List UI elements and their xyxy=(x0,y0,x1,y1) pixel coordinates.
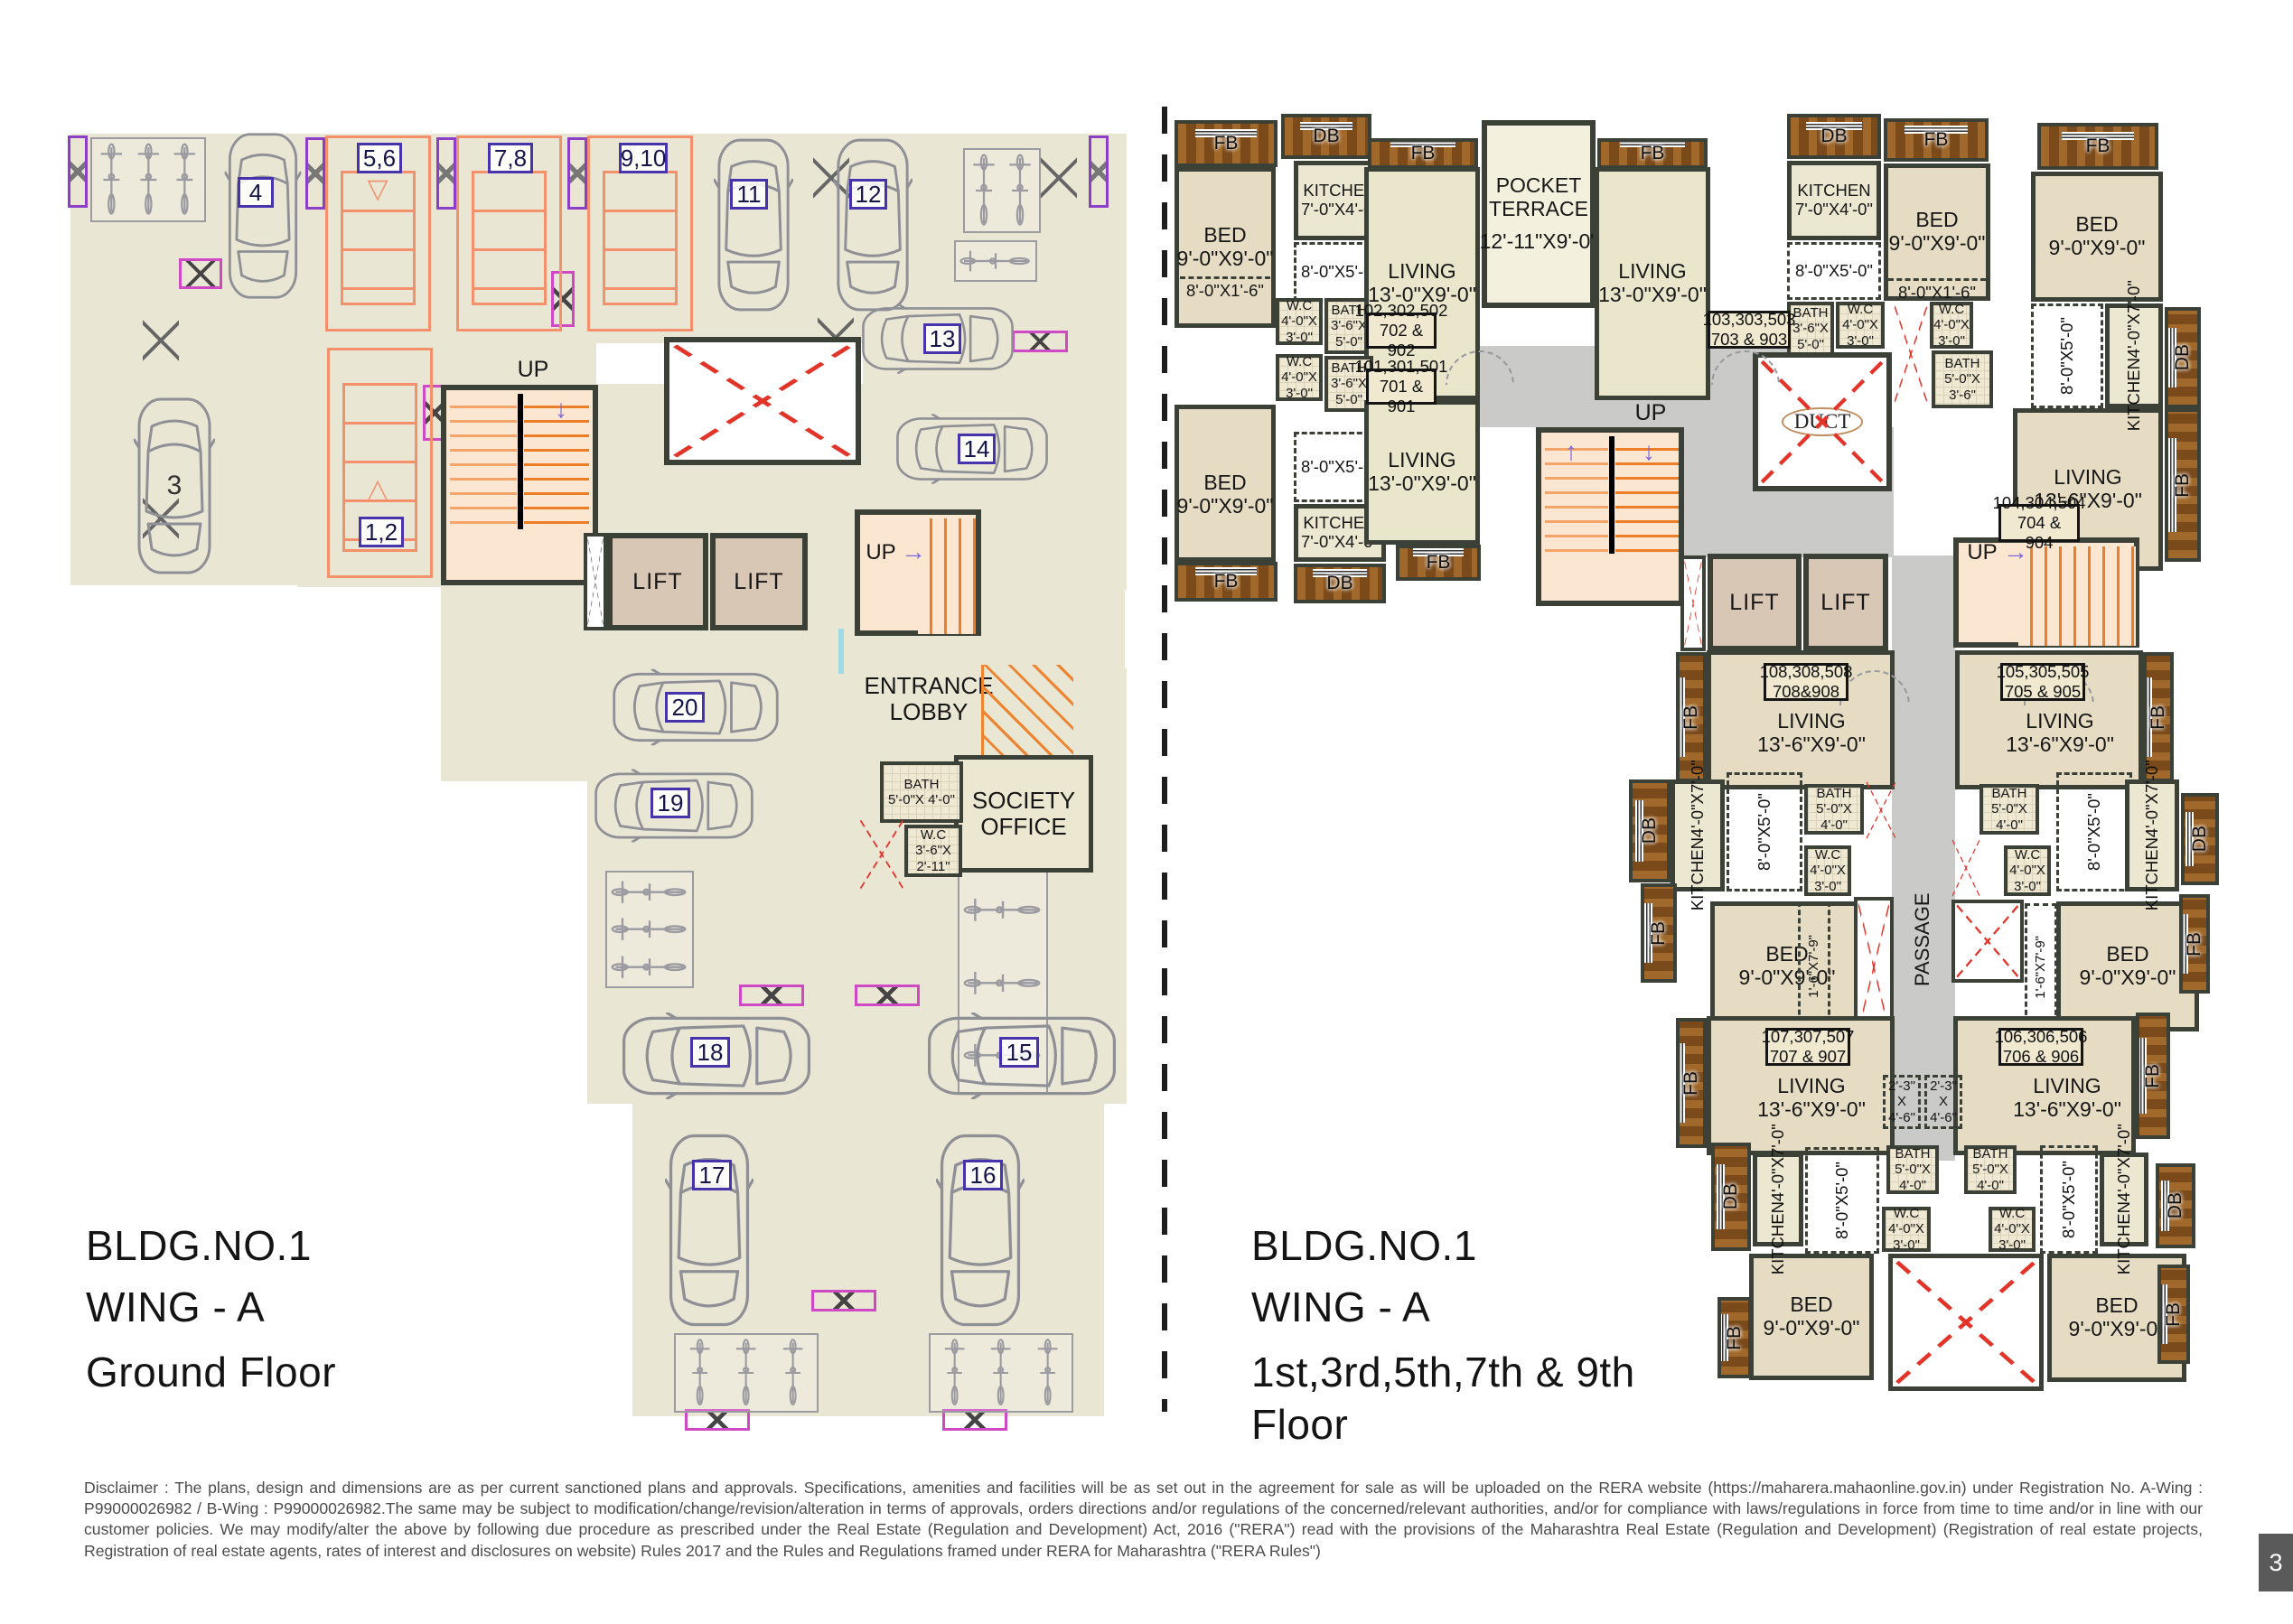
bath-104: BATH5'-0"X 3'-6" xyxy=(1932,350,1993,408)
dry-balcony-db: DB xyxy=(2181,793,2219,885)
flower-bed-fb: FB xyxy=(1175,120,1278,167)
dashed-line xyxy=(1888,278,1986,281)
parking-number-12: 12 xyxy=(849,179,887,210)
ground-plan-title-line1: BLDG.NO.1 xyxy=(86,1221,312,1270)
kitchen-103: KITCHEN7'-0"X4'-0" xyxy=(1787,161,1881,240)
flower-bed-fb: FB xyxy=(2037,123,2158,170)
pink-marker-icon xyxy=(811,1290,876,1311)
stair-direction-arrow-icon: → xyxy=(900,540,927,564)
open-area-108: 8'-0"X5'-0" xyxy=(1727,772,1802,891)
up-label: UP xyxy=(1959,542,2006,564)
bath-108: BATH5'-0"X 4'-0" xyxy=(1804,784,1864,835)
typical-plan-title-line1: BLDG.NO.1 xyxy=(1251,1221,1477,1270)
unit-plate-101: 101,301,501701 & 901 xyxy=(1366,369,1437,405)
cross-mark-icon xyxy=(1041,152,1077,204)
pink-marker-icon xyxy=(1012,331,1068,352)
parking-number-15: 15 xyxy=(999,1037,1039,1068)
wc-104: W.C4'-0"X 3'-0" xyxy=(1930,302,1973,349)
wc-103: W.C4'-0"X 3'-0" xyxy=(1836,302,1885,349)
dashed-line xyxy=(1180,276,1270,279)
stack-arrow-icon: ▽ xyxy=(365,177,390,202)
unit-plate-104: 104,304,504704 & 904 xyxy=(1998,504,2080,542)
parking-number-11: 11 xyxy=(730,179,768,210)
unit-plate-108: 108,308,508708&908 xyxy=(1764,663,1848,701)
bike-parking-rack xyxy=(674,1333,819,1413)
lift-shaft xyxy=(1680,555,1706,651)
kitchen-107: KITCHEN4'-0"X7'-0" xyxy=(1753,1153,1803,1246)
flower-bed-fb: FB xyxy=(1368,138,1478,169)
ground-wc: W.C3'-6"X 2'-11" xyxy=(904,825,962,877)
bike-parking-rack xyxy=(954,240,1037,282)
column-marker-icon xyxy=(436,137,456,210)
parking-number-7-8: 7,8 xyxy=(488,143,533,173)
staircase: ↓ xyxy=(441,385,598,585)
living-107-label: LIVING13'-6"X9'-0" xyxy=(1739,1073,1884,1124)
bedroom-101: BED9'-0"X9'-0" xyxy=(1175,405,1276,562)
ground-bath: BATH5'-0"X 4'-0" xyxy=(880,761,963,823)
parking-number-20: 20 xyxy=(665,692,705,723)
bed-extension-105: 1'-6"X7'-9" xyxy=(2025,903,2057,1031)
passage-label: PASSAGE xyxy=(1895,849,1950,1030)
flower-bed-fb: FB xyxy=(1175,562,1278,602)
stair-direction-arrow-icon: ↓ xyxy=(548,396,575,423)
parking-number-16: 16 xyxy=(963,1160,1003,1190)
shaft-cross xyxy=(859,818,904,891)
plan-divider-line xyxy=(1162,107,1167,1412)
lift: LIFT xyxy=(1708,554,1802,651)
typical-plan-title-line4: Floor xyxy=(1251,1400,1348,1449)
dry-balcony-db: DB xyxy=(1787,114,1881,159)
parking-number-5-6: 5,6 xyxy=(357,143,402,173)
bike-parking-rack xyxy=(963,148,1041,233)
flower-bed-fb: FB xyxy=(2157,1265,2190,1364)
bath-106: BATH5'-0"X 4'-0" xyxy=(1964,1145,2017,1194)
kitchen-108: KITCHEN4'-0"X7'-0" xyxy=(1671,779,1725,891)
up-label: UP xyxy=(506,358,560,381)
open-area-106: 8'-0"X5'-0" xyxy=(2040,1145,2098,1254)
stair-direction-arrow-icon: → xyxy=(2002,540,2029,564)
flower-bed-fb: FB xyxy=(1717,1297,1752,1378)
wc-106: W.C4'-0"X 3'-0" xyxy=(1989,1207,2036,1252)
flower-bed-fb: FB xyxy=(1597,138,1708,169)
flower-bed-fb: FB xyxy=(1396,545,1481,581)
wc-105: W.C4'-0"X 3'-0" xyxy=(2004,845,2051,896)
kitchen-106: KITCHEN4'-0"X7'-0" xyxy=(2100,1153,2148,1246)
up-label: UP xyxy=(858,542,903,564)
flower-bed-fb: FB xyxy=(2136,1013,2170,1139)
staircase: ↑ ↓ xyxy=(1536,427,1684,606)
pink-marker-icon xyxy=(179,258,222,289)
disclaimer-text: Disclaimer : The plans, design and dimen… xyxy=(84,1478,2203,1584)
dry-balcony-db: DB xyxy=(1281,114,1371,159)
shaft-cross xyxy=(1888,1254,2044,1391)
lift: LIFT xyxy=(607,533,708,630)
kitchen-104: KITCHEN4'-0"X7'-0" xyxy=(2105,303,2163,408)
flower-bed-fb: FB xyxy=(2165,408,2201,562)
parking-number-3: 3 xyxy=(158,470,191,502)
bike-parking-rack xyxy=(90,137,206,222)
typical-plan-title-line2: WING - A xyxy=(1251,1283,1430,1331)
pink-marker-icon xyxy=(739,985,804,1006)
parking-number-18: 18 xyxy=(690,1037,730,1068)
bed-extension-dim: 8'-0"X1'-6" xyxy=(1886,282,1988,303)
bath-107: BATH5'-0"X 4'-0" xyxy=(1886,1145,1939,1194)
up-label: UP xyxy=(1624,401,1677,425)
parking-number-13: 13 xyxy=(923,323,961,354)
shaft-cross xyxy=(1894,303,1928,405)
wc-101: W.C4'-0"X 3'-0" xyxy=(1276,354,1323,401)
stack-arrow-icon: △ xyxy=(365,477,390,502)
society-office: SOCIETYOFFICE xyxy=(954,755,1093,873)
parking-number-4: 4 xyxy=(238,177,274,208)
flower-bed-fb: FB xyxy=(1641,883,1677,983)
column-marker-icon xyxy=(305,137,325,210)
wc-107: W.C4'-0"X 3'-0" xyxy=(1882,1207,1931,1252)
bike-parking-rack xyxy=(605,871,694,988)
shaft-cross xyxy=(1951,900,2024,983)
open-area-105: 8'-0"X5'-0" xyxy=(2056,772,2132,891)
ramp-hatch xyxy=(981,665,1073,759)
bike-parking-rack xyxy=(929,1333,1073,1413)
cross-mark-icon xyxy=(143,314,179,367)
parked-car xyxy=(223,131,303,301)
open-area-104: 8'-0"X5'-0" xyxy=(2031,303,2103,408)
unit-plate-107: 107,307,507707 & 907 xyxy=(1765,1028,1850,1066)
bedroom-105: BED9'-0"X9'-0" xyxy=(2056,901,2199,1031)
entrance-staircase xyxy=(855,509,981,636)
dry-balcony-db: DB xyxy=(2165,307,2201,408)
open-area-103: 8'-0"X5'-0" xyxy=(1787,242,1881,300)
bedroom-102: BED9'-0"X9'-0" xyxy=(1175,167,1276,328)
bed-extension-dim: 8'-0"X1'-6" xyxy=(1176,280,1274,302)
unit-plate-106: 106,306,506706 & 906 xyxy=(1998,1028,2083,1066)
column-marker-icon xyxy=(1089,135,1109,208)
kitchen-105: KITCHEN4'-0"X7'-0" xyxy=(2125,779,2179,891)
dry-balcony-db: DB xyxy=(1711,1143,1751,1251)
flower-bed-fb: FB xyxy=(1884,118,1989,162)
bath-105: BATH5'-0"X 4'-0" xyxy=(1979,784,2039,835)
lift-shaft xyxy=(584,533,607,630)
lift: LIFT xyxy=(1803,554,1888,651)
void-cutout xyxy=(664,337,861,465)
bed-extension-108: 1'-6"X7'-9" xyxy=(1798,901,1830,1031)
parked-car xyxy=(833,132,913,318)
dry-balcony-db: DB xyxy=(1294,564,1386,603)
flower-bed-fb: FB xyxy=(2179,894,2210,994)
lift: LIFT xyxy=(710,533,808,630)
living-103: LIVING13'-0"X9'-0" xyxy=(1595,167,1710,400)
parking-number-17: 17 xyxy=(692,1160,732,1190)
dry-balcony-db: DB xyxy=(2156,1163,2195,1248)
wc-108: W.C4'-0"X 3'-0" xyxy=(1804,845,1851,896)
shaft-cross xyxy=(1866,780,1896,840)
pocket-terrace: POCKETTERRACE12'-11"X9'-0" xyxy=(1482,120,1596,308)
pink-marker-icon xyxy=(855,985,920,1006)
ground-plan-title-line3: Ground Floor xyxy=(86,1348,336,1396)
column-marker-icon xyxy=(567,137,587,210)
parked-car xyxy=(714,132,793,318)
floor-plan-sheet: 5,6 ▽ 7,8 9,10 △ 1,2 4 11 12 13 14 3 20 … xyxy=(0,0,2293,1624)
page-number: 3 xyxy=(2259,1534,2293,1591)
parking-number-19: 19 xyxy=(650,788,690,818)
parking-number-14: 14 xyxy=(958,434,996,464)
bedroom-108: BED9'-0"X9'-0" xyxy=(1710,901,1864,1031)
door-accent xyxy=(838,629,844,674)
niche-dim: 2'-3"X4'-6" xyxy=(1883,1075,1921,1129)
unit-plate-102: 102,302,502702 & 902 xyxy=(1366,313,1437,349)
dry-balcony-db: DB xyxy=(1629,779,1671,882)
wc-102: W.C4'-0"X 3'-0" xyxy=(1276,298,1323,345)
column-marker-icon xyxy=(68,135,88,208)
niche-dim: 2'-3"X4'-6" xyxy=(1924,1075,1962,1129)
open-area-107: 8'-0"X5'-0" xyxy=(1805,1147,1879,1254)
stair-direction-arrow-icon: ↓ xyxy=(1635,438,1662,465)
unit-plate-103: 103,303,503703 & 903 xyxy=(1708,311,1791,349)
shaft-cross xyxy=(1951,838,1980,898)
living-106-label: LIVING13'-6"X9'-0" xyxy=(2004,1073,2130,1124)
unit-plate-105: 105,305,505705 & 905 xyxy=(2000,663,2085,701)
stair-direction-arrow-icon: ↑ xyxy=(1558,438,1585,465)
flower-bed-fb: FB xyxy=(1676,1018,1707,1148)
living-101: LIVING13'-0"X9'-0" xyxy=(1364,400,1480,545)
ground-plan-title-line2: WING - A xyxy=(86,1283,265,1331)
parking-number-1-2: 1,2 xyxy=(359,517,404,547)
typical-plan-title-line3: 1st,3rd,5th,7th & 9th xyxy=(1251,1348,1635,1396)
parking-number-9-10: 9,10 xyxy=(619,143,668,173)
